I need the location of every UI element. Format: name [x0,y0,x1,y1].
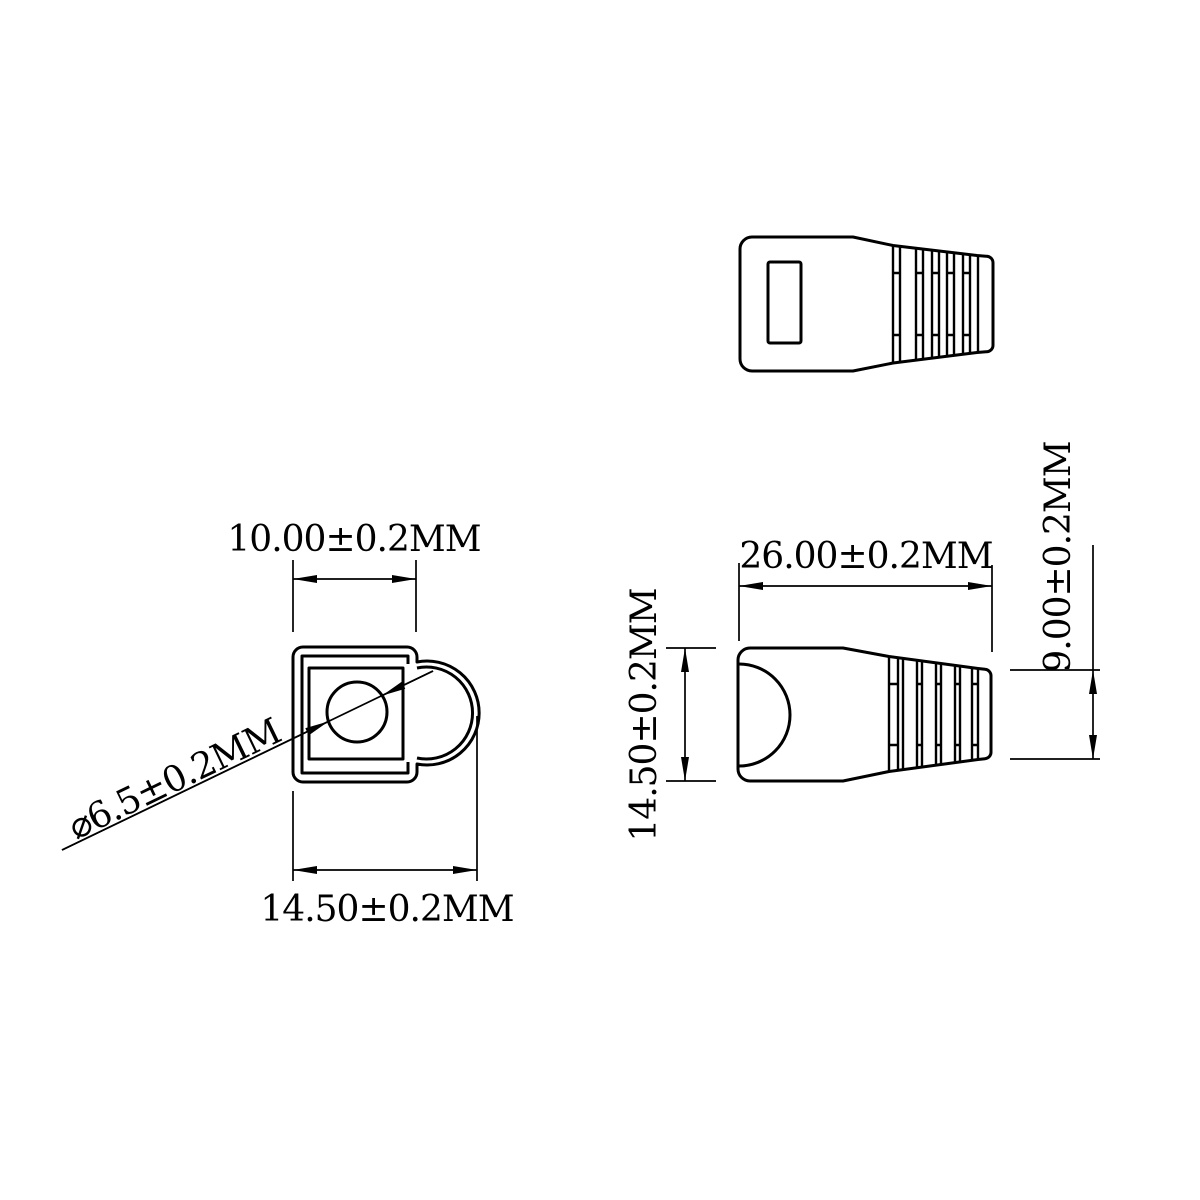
front-bump-inner-arc [417,667,473,759]
extension-lines [293,716,477,881]
extension-lines [293,560,416,632]
front-inner-frame [302,656,408,773]
dim-side-tail-height: 9.00±0.2MM [1010,441,1100,759]
top-view-rib-lines [893,246,978,363]
dim-front-square-width: 10.00±0.2MM [227,519,480,632]
dim-front-overall-width: 14.50±0.2MM [260,716,513,930]
dim-label-side-height: 14.50±0.2MM [624,588,665,841]
dim-label-front-square-width: 10.00±0.2MM [227,519,480,560]
dim-side-length: 26.00±0.2MM [739,536,993,652]
dim-label-hole-diameter: ⌀6.5±0.2MM [62,711,287,848]
diameter-arrow-upper [382,671,433,696]
rj45-boot-technical-drawing: 10.00±0.2MM 14.50±0.2MM ⌀6.5±0.2MM 26.00… [0,0,1200,1200]
dim-side-height: 14.50±0.2MM [624,588,716,841]
latch-window [768,262,801,343]
side-view [738,648,991,781]
drawing-canvas: 10.00±0.2MM 14.50±0.2MM ⌀6.5±0.2MM 26.00… [0,0,1200,1200]
side-view-rib-lines [889,657,978,771]
side-view-outline [738,648,991,781]
dim-label-side-length: 26.00±0.2MM [739,536,992,577]
side-cable-opening-arc [739,664,790,766]
extension-lines [666,648,716,781]
dim-label-front-overall-width: 14.50±0.2MM [260,889,513,930]
cable-hole-circle [327,682,387,742]
top-view [740,237,993,371]
front-view [293,647,479,782]
dim-label-side-tail-height: 9.00±0.2MM [1038,441,1079,672]
